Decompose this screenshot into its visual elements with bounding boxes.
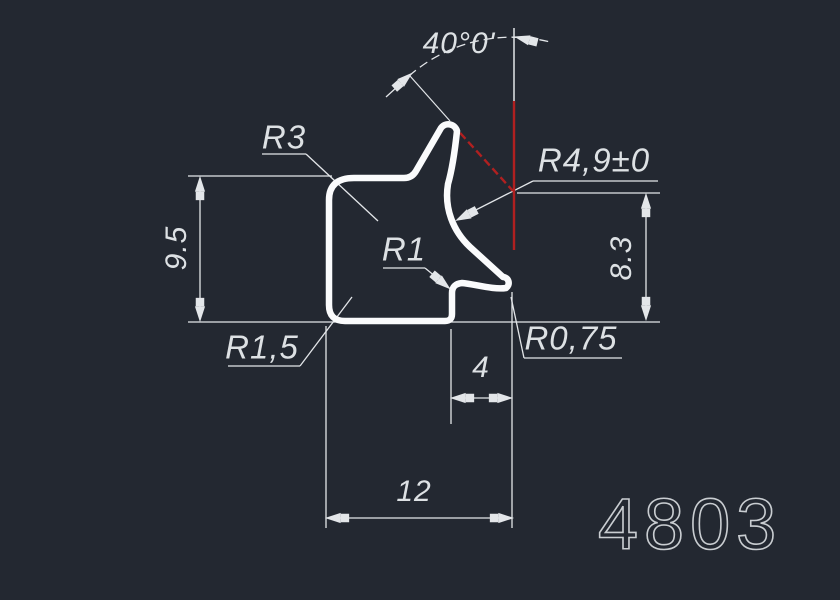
dim-width-total-label: 12 [396, 477, 431, 507]
dim-height-left-label: 9.5 [162, 226, 192, 271]
profile-outline [329, 124, 509, 321]
dim-r075-label: R0,75 [524, 322, 617, 355]
leader-r075 [511, 297, 524, 358]
construction-line-40deg-upper [410, 76, 450, 121]
part-number: 4803 [598, 485, 782, 565]
dim-angle-label: 40°0' [423, 29, 496, 59]
construction-line-40deg-red [452, 124, 513, 191]
dim-r3-label: R3 [262, 121, 306, 154]
dim-height-right-label: 8.3 [607, 236, 637, 281]
cad-linework: 4803 [0, 0, 840, 600]
dimension-lines [188, 28, 660, 528]
dim-r1-label: R1 [382, 233, 426, 266]
dim-r15-label: R1,5 [225, 331, 299, 364]
leader-r3 [306, 154, 378, 221]
dim-r49-label: R4,9±0 [538, 144, 650, 177]
cad-drawing-canvas: 4803 40°0' R3 R4,9±0 9.5 8.3 R1 R1,5 R0,… [0, 0, 840, 600]
dim-width-inner-label: 4 [472, 353, 490, 383]
